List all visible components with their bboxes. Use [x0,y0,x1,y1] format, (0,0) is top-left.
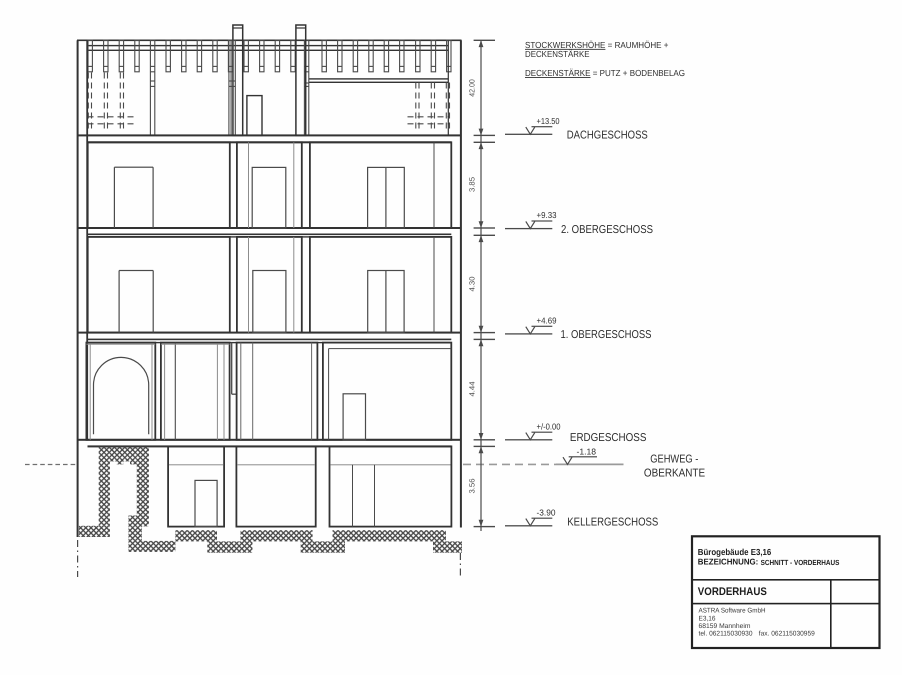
svg-text:1. OBERGESCHOSS: 1. OBERGESCHOSS [561,329,652,341]
svg-text:DACHGESCHOSS: DACHGESCHOSS [567,130,648,142]
svg-text:fax. 062115030959: fax. 062115030959 [759,631,815,638]
svg-text:BEZEICHNUNG:: BEZEICHNUNG: [698,557,759,567]
svg-text:GEHWEG -: GEHWEG - [650,454,698,466]
svg-text:OBERKANTE: OBERKANTE [644,468,706,480]
svg-text:E3,16: E3,16 [699,615,716,622]
svg-text:tel. 062115030930: tel. 062115030930 [699,631,753,638]
svg-text:2. OBERGESCHOSS: 2. OBERGESCHOSS [561,224,653,236]
svg-text:+4.69: +4.69 [537,315,557,325]
svg-text:+/-0.00: +/-0.00 [537,421,561,431]
svg-text:42.00: 42.00 [468,79,477,97]
svg-text:KELLERGESCHOSS: KELLERGESCHOSS [567,516,658,528]
svg-text:Bürogebäude E3,16: Bürogebäude E3,16 [698,547,772,557]
svg-text:3.85: 3.85 [468,177,477,192]
svg-text:4.30: 4.30 [468,277,477,292]
svg-text:+13.50: +13.50 [537,116,560,126]
svg-text:SCHNITT - VORDERHAUS: SCHNITT - VORDERHAUS [761,558,840,567]
svg-text:-3.90: -3.90 [537,507,556,517]
svg-text:DECKENSTÄRKE: DECKENSTÄRKE [525,49,590,59]
svg-text:68159 Mannheim: 68159 Mannheim [699,623,751,630]
svg-text:-1.18: -1.18 [577,446,597,456]
svg-text:VORDERHAUS: VORDERHAUS [698,586,767,598]
svg-text:ASTRA Software GmbH: ASTRA Software GmbH [699,608,766,615]
svg-text:+9.33: +9.33 [537,210,557,220]
svg-text:4.44: 4.44 [468,382,477,397]
svg-text:3.56: 3.56 [468,479,477,494]
svg-text:ERDGESCHOSS: ERDGESCHOSS [570,432,647,444]
svg-text:DECKENSTÄRKE = PUTZ + BODENBEL: DECKENSTÄRKE = PUTZ + BODENBELAG [525,68,685,78]
